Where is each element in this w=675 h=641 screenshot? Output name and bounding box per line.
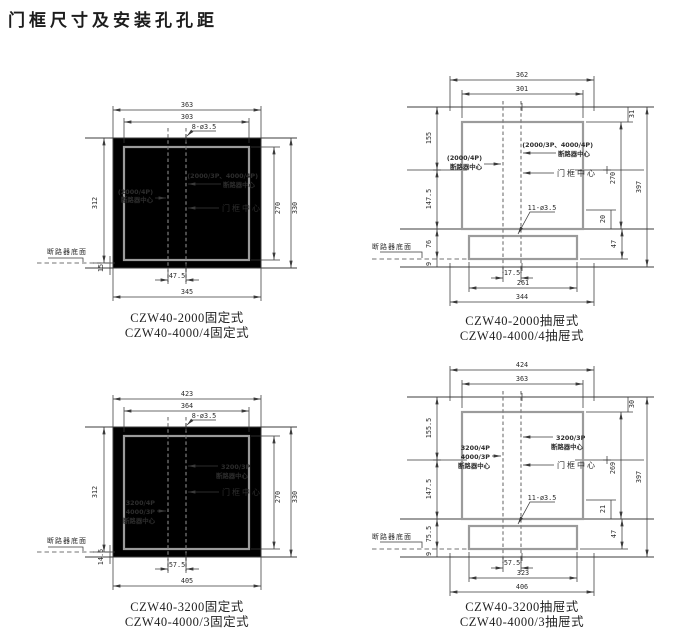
dim-width-frame: 363	[516, 375, 528, 383]
dim-center-offset: 57.5	[504, 559, 520, 567]
breaker-center-4p-label-line2: 4000/3P	[461, 453, 491, 461]
breaker-center-label-line2: 断路器中心	[558, 149, 591, 158]
breaker-center-4p-label-line1: (2000/4P)	[447, 154, 482, 162]
dim-width-aperture: 261	[517, 279, 529, 287]
dim-center-offset: 47.5	[169, 272, 185, 280]
breaker-base-label: 断路器底面	[47, 536, 87, 545]
dim-left-mid: 147.5	[425, 479, 433, 499]
dim-left-lower: 76	[425, 240, 433, 248]
dim-width-frame: 364	[181, 402, 193, 410]
breaker-center-4p-label-line2: 断路器中心	[121, 195, 154, 204]
hole-spec-label: 8-ø3.5	[192, 123, 217, 131]
caption-line1: CZW40-3200固定式	[130, 599, 243, 614]
dim-height-left: 312	[91, 197, 99, 209]
breaker-center-4p-label-line3: 断路器中心	[458, 461, 491, 470]
dim-right-top: 31	[628, 110, 636, 118]
frame-center-label: 门框中心	[222, 203, 262, 213]
breaker-center-4p-label-line1: (2000/4P)	[118, 188, 153, 196]
caption-line1: CZW40-3200抽屉式	[465, 600, 578, 614]
diagram-czw40-3200-drawer: 424 363 155.5 147.5 75.5 9 30 269 397 21…	[370, 353, 675, 638]
dim-left-mid: 147.5	[425, 189, 433, 209]
breaker-base-label: 断路器底面	[372, 532, 412, 541]
breaker-base-label: 断路器底面	[47, 247, 87, 256]
dim-left-upper: 155	[425, 132, 433, 144]
frame-center-label: 门框中心	[557, 168, 597, 178]
caption-line2: CZW40-4000/3固定式	[125, 614, 249, 629]
diagram-czw40-3200-fixed: 423 364 8-ø3.5 312 14.5 270 330 57.5 405…	[35, 357, 335, 637]
dim-width-aperture: 323	[517, 569, 529, 577]
dim-base-offset: 14.5	[97, 549, 105, 565]
drawer-aperture	[469, 236, 577, 259]
caption-line2: CZW40-4000/4固定式	[125, 325, 249, 340]
dim-width-bottom: 406	[516, 583, 528, 591]
breaker-center-4p-label-line1: 3200/4P	[461, 444, 491, 452]
dim-right-frame: 270	[609, 172, 617, 184]
drawer-aperture	[469, 526, 577, 549]
dim-right-outer: 397	[635, 181, 643, 193]
dim-base-offset: 15	[97, 264, 105, 272]
dim-height-outer: 330	[291, 491, 299, 503]
dimension-lines	[437, 366, 647, 596]
dim-height-outer: 330	[291, 202, 299, 214]
dim-left-base: 9	[425, 262, 433, 266]
dim-center-offset: 57.5	[169, 561, 185, 569]
page-title: 门框尺寸及安装孔孔距	[8, 6, 218, 31]
dim-left-base: 9	[425, 552, 433, 556]
center-lines	[503, 101, 521, 273]
mounting-holes	[433, 103, 611, 271]
frame-center-label: 门框中心	[557, 460, 597, 470]
dim-right-step: 20	[599, 215, 607, 223]
dim-left-lower: 75.5	[425, 526, 433, 542]
dim-right-frame: 269	[609, 462, 617, 474]
dim-left-upper: 155.5	[425, 418, 433, 438]
breaker-base-label: 断路器底面	[372, 242, 412, 251]
breaker-center-label-line2: 断路器中心	[551, 442, 584, 451]
frame-center-label: 门框中心	[222, 487, 262, 497]
diagram-czw40-2000-drawer: 362 301 155 147.5 76 9 31 270 397 20 47 …	[370, 63, 675, 348]
breaker-center-label-line2: 断路器中心	[223, 180, 256, 189]
breaker-center-label-line1: 3200/3P	[221, 463, 251, 471]
dim-width-bottom: 345	[181, 288, 193, 296]
caption-line1: CZW40-2000固定式	[130, 310, 243, 325]
diagram-czw40-2000-fixed: 363 303 8-ø3.5 312 15 270 330 47.5 345 (…	[35, 68, 335, 348]
hole-spec-label: 11-ø3.5	[528, 204, 557, 212]
breaker-center-4p-label-line3: 断路器中心	[123, 516, 156, 525]
dim-width-bottom: 405	[181, 577, 193, 585]
dim-right-aperture: 47	[610, 530, 618, 538]
dim-height-left: 312	[91, 486, 99, 498]
hole-spec-label: 11-ø3.5	[528, 494, 557, 502]
dim-width-bottom: 344	[516, 293, 528, 301]
breaker-center-label-line1: (2000/3P、4000/4P)	[522, 141, 593, 149]
breaker-center-label-line2: 断路器中心	[216, 471, 249, 480]
dim-width-outer: 363	[181, 101, 193, 109]
caption-line2: CZW40-4000/3抽屉式	[460, 615, 584, 629]
dim-width-outer: 424	[516, 361, 528, 369]
dim-center-offset: 17.5	[504, 269, 520, 277]
dim-height-frame: 270	[274, 491, 282, 503]
hole-spec-label: 8-ø3.5	[192, 412, 217, 420]
dimension-lines	[437, 76, 647, 306]
caption-line1: CZW40-2000抽屉式	[465, 314, 578, 328]
breaker-center-4p-label-line2: 4000/3P	[126, 508, 156, 516]
leader-lines	[492, 437, 554, 465]
dim-width-frame: 301	[516, 85, 528, 93]
breaker-center-4p-label-line2: 断路器中心	[450, 162, 483, 171]
dim-right-outer: 397	[635, 471, 643, 483]
breaker-center-label-line1: 3200/3P	[556, 434, 586, 442]
breaker-center-label-line1: (2000/3P、4000/4P)	[187, 172, 258, 180]
caption-line2: CZW40-4000/4抽屉式	[460, 329, 584, 343]
dim-width-outer: 362	[516, 71, 528, 79]
center-lines	[503, 391, 521, 563]
dim-right-aperture: 47	[610, 240, 618, 248]
dim-right-step: 21	[599, 505, 607, 513]
dim-right-top: 30	[628, 400, 636, 408]
dim-width-frame: 303	[181, 113, 193, 121]
drawing-sheet: 门框尺寸及安装孔孔距	[0, 0, 675, 641]
leader-lines	[484, 153, 556, 173]
mounting-holes	[433, 393, 611, 561]
breaker-center-4p-label-line1: 3200/4P	[126, 499, 156, 507]
dim-width-outer: 423	[181, 390, 193, 398]
dim-height-frame: 270	[274, 202, 282, 214]
